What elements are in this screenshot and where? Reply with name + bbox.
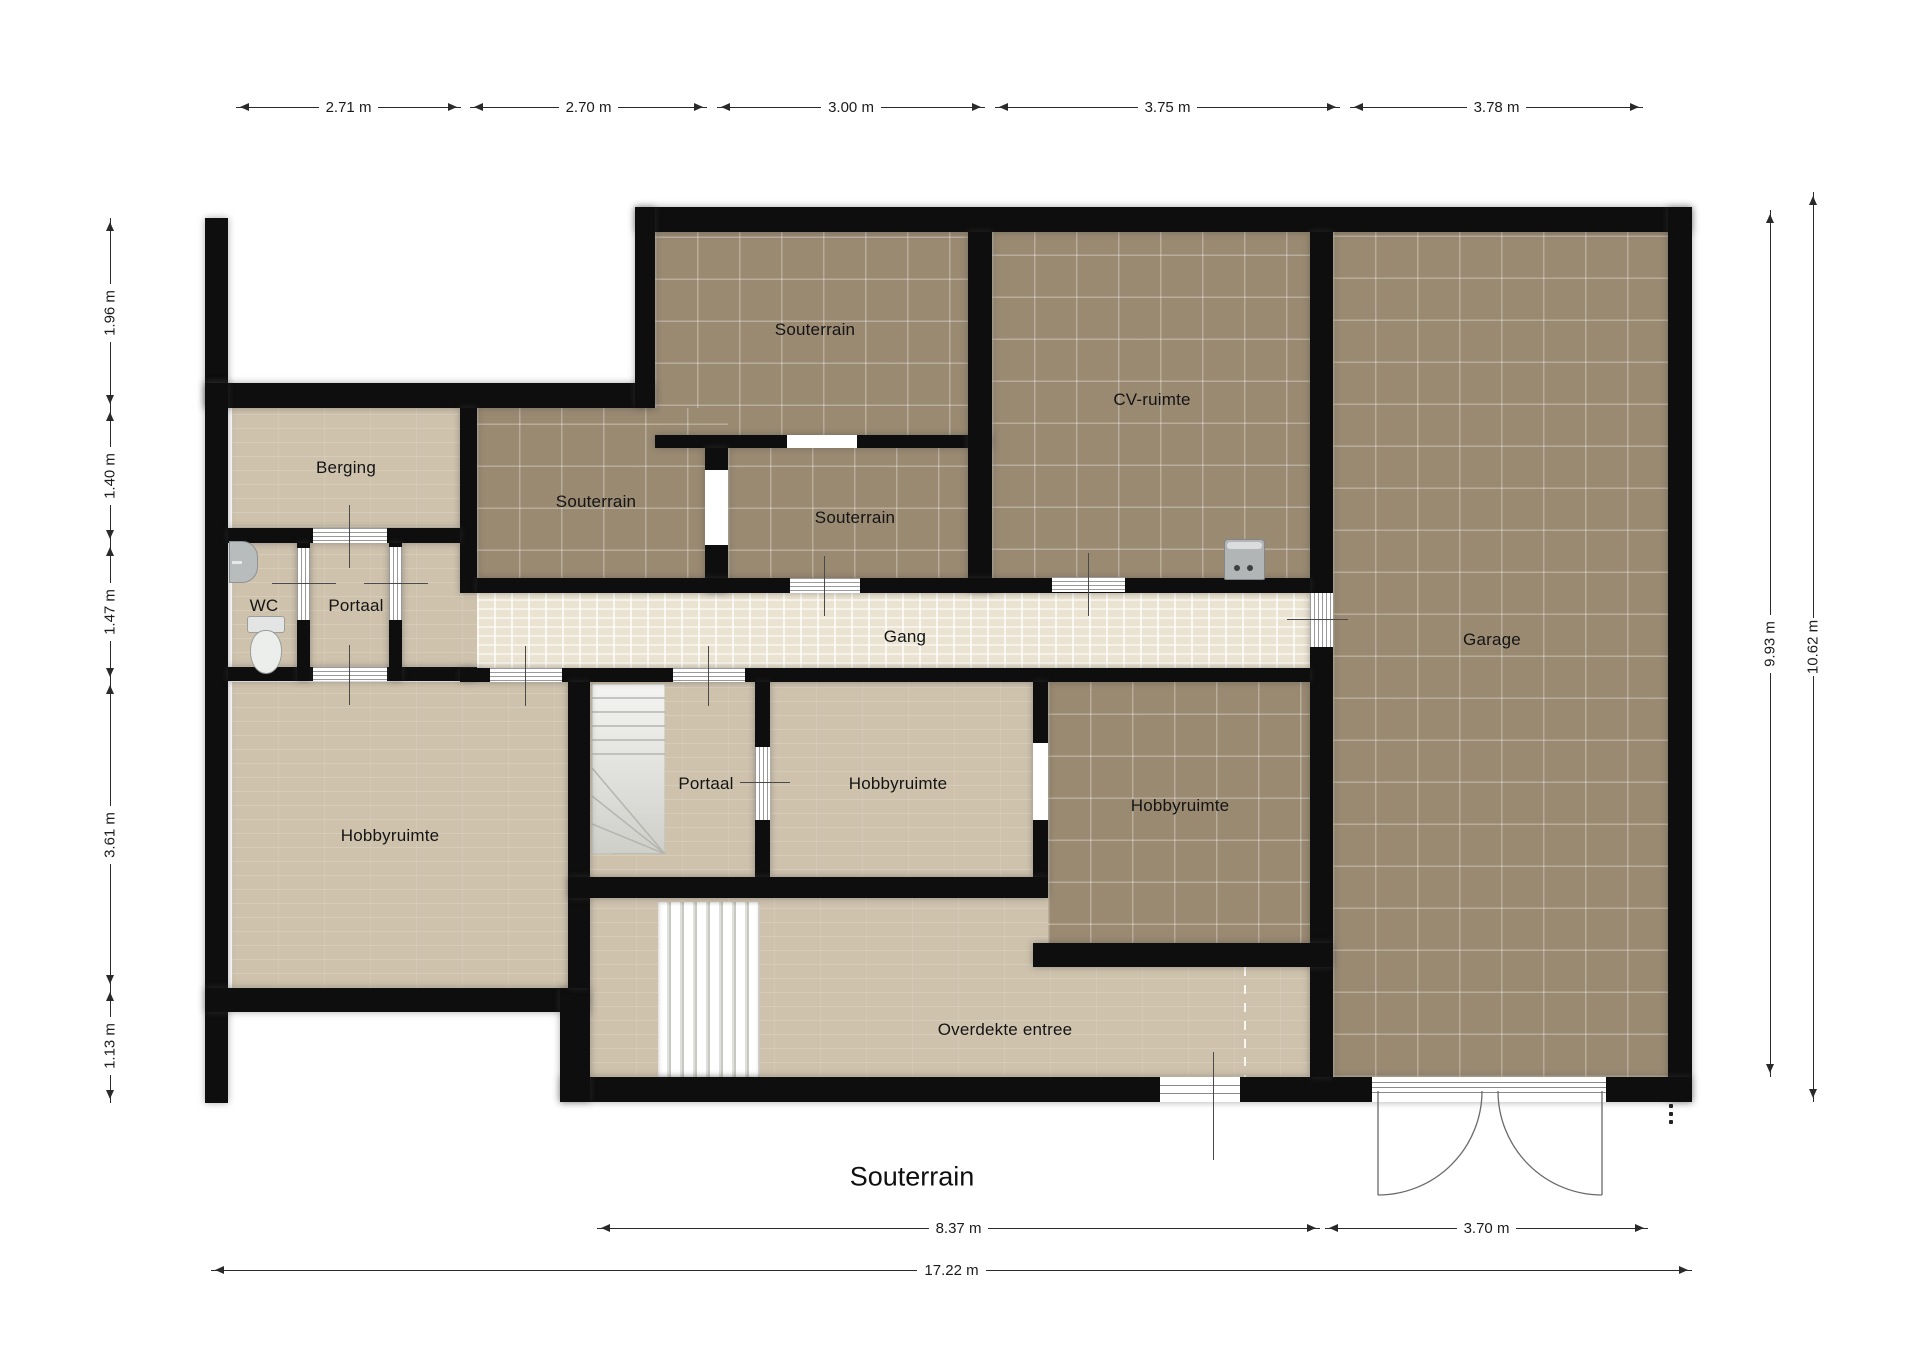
dim-top-5: 3.78 m — [1350, 99, 1643, 115]
entree-dashed-line — [1244, 967, 1246, 1077]
dim-left-3: 1.47 m — [102, 543, 118, 681]
wall-hobby-bottom-exterior — [205, 988, 590, 1012]
dim-right-outer: 10.62 m — [1805, 192, 1821, 1102]
dim-left-1: 1.96 m — [102, 218, 118, 408]
wall-gang-top — [477, 578, 1310, 593]
door-portaal-hobby — [313, 667, 387, 681]
door-wc — [297, 548, 310, 620]
door-tick — [708, 646, 709, 706]
door-gang-hobbylinks — [490, 668, 562, 682]
door-tick — [349, 505, 350, 568]
door-tick — [1088, 553, 1089, 616]
door-tick — [740, 782, 790, 783]
room-label-garage: Garage — [1463, 630, 1521, 650]
room-label-portaal-boven: Portaal — [328, 596, 383, 616]
door-tick — [824, 556, 825, 616]
boiler-dot — [1234, 565, 1240, 571]
door-gang-souterrain — [790, 578, 860, 593]
dim-left-4: 3.61 m — [102, 681, 118, 988]
toilet-bowl-icon — [250, 630, 282, 674]
wall-hobbyrechts-bottom — [1033, 943, 1333, 967]
window-souterrain-mid — [787, 435, 857, 448]
vertical-ellipsis-icon — [1669, 1104, 1673, 1108]
floor-cv-ruimte — [992, 232, 1333, 592]
dim-left-5: 1.13 m — [102, 988, 118, 1103]
room-label-souterrain-midden: Souterrain — [815, 508, 895, 528]
vertical-ellipsis-icon — [1669, 1112, 1673, 1116]
dim-bottom-2: 3.70 m — [1325, 1220, 1648, 1236]
floor-garage — [1333, 232, 1668, 1077]
winder-stairs-icon — [592, 684, 665, 854]
door-tick — [525, 646, 526, 706]
room-label-souterrain-top: Souterrain — [775, 320, 855, 340]
room-label-portaal-midden: Portaal — [678, 774, 733, 794]
dim-top-4: 3.75 m — [995, 99, 1340, 115]
room-label-berging: Berging — [316, 458, 376, 478]
washbasin-icon — [229, 541, 258, 583]
floor-hobbyruimte-rechts — [1048, 682, 1310, 967]
room-label-gang: Gang — [884, 627, 926, 647]
wall-left-top-stub — [205, 218, 228, 408]
cv-boiler-icon — [1224, 539, 1265, 580]
door-gang-portaalmid — [673, 668, 745, 682]
wall-entree-left — [560, 988, 590, 1102]
wall-patio-right — [635, 207, 655, 408]
door-tick — [349, 645, 350, 705]
dim-top-3: 3.00 m — [717, 99, 985, 115]
room-label-souterrain-links: Souterrain — [556, 492, 636, 512]
wall-hobbymid-bottom — [568, 877, 1048, 898]
door-tick — [1287, 619, 1348, 620]
dim-top-1: 2.71 m — [236, 99, 461, 115]
window-tick — [1213, 1052, 1214, 1160]
dim-top-2: 2.70 m — [470, 99, 707, 115]
boiler-band — [1227, 542, 1262, 549]
opening-hobbymid-hobbyrechts — [1033, 743, 1048, 820]
wall-gang-bottom — [460, 668, 1310, 682]
dim-left-2: 1.40 m — [102, 408, 118, 543]
vertical-ellipsis-icon — [1669, 1120, 1673, 1124]
straight-stairs-icon — [658, 902, 760, 1077]
wall-patio-bottom — [205, 383, 655, 408]
dim-right-inner: 9.93 m — [1762, 210, 1778, 1077]
wall-berging-souterrain — [460, 408, 477, 593]
room-label-hobbyruimte-rechts: Hobbyruimte — [1131, 796, 1230, 816]
door-portaalmid-hobbymid — [755, 747, 770, 820]
room-label-hobbyruimte-midden: Hobbyruimte — [849, 774, 948, 794]
window-entree-bottom — [1160, 1077, 1240, 1102]
wall-top-exterior — [635, 207, 1692, 232]
dim-bottom-1: 8.37 m — [597, 1220, 1320, 1236]
room-label-cv-ruimte: CV-ruimte — [1113, 390, 1190, 410]
dim-bottom-total: 17.22 m — [211, 1262, 1692, 1278]
room-label-hobbyruimte-links: Hobbyruimte — [341, 826, 440, 846]
boiler-dot — [1247, 565, 1253, 571]
wall-cv-left — [968, 232, 992, 592]
opening-souterrain-links-mid — [705, 470, 728, 545]
door-tick — [272, 583, 336, 584]
page-title: Souterrain — [850, 1162, 975, 1193]
wall-right-exterior — [1668, 207, 1692, 1102]
door-berging-top — [313, 528, 387, 543]
wall-hobbylinks-divider — [568, 682, 590, 988]
door-tick — [364, 583, 428, 584]
door-gang-garage — [1310, 593, 1333, 647]
garage-door-swing-arcs — [1360, 1085, 1620, 1210]
room-label-wc: WC — [250, 596, 279, 616]
room-label-overdekte-entree: Overdekte entree — [938, 1020, 1073, 1040]
floorplan-canvas: Souterrain CV-ruimte Garage Berging Sout… — [0, 0, 1920, 1358]
